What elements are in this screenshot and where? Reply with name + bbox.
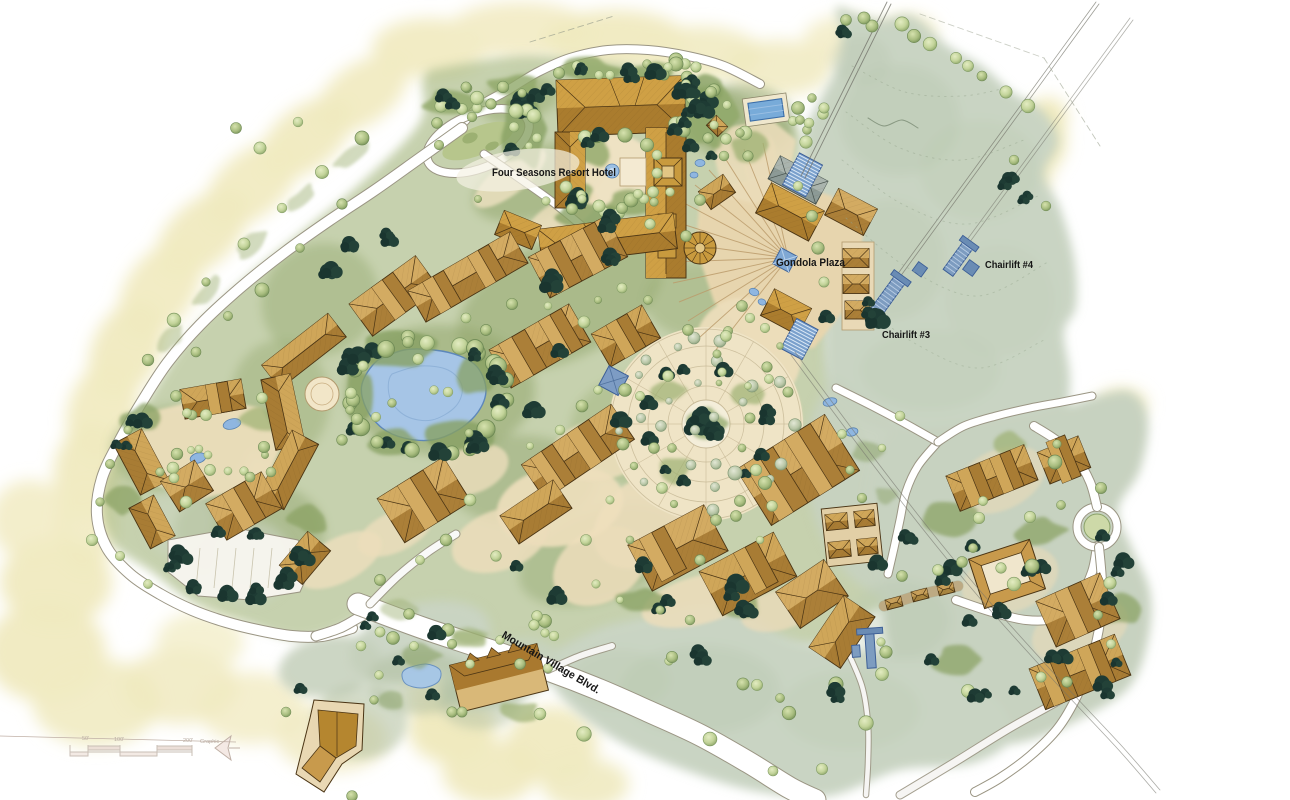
svg-text:Gondola Plaza: Gondola Plaza xyxy=(776,257,846,269)
svg-text:50': 50' xyxy=(82,736,89,742)
svg-text:100': 100' xyxy=(114,737,124,743)
svg-text:Four Seasons Resort Hotel: Four Seasons Resort Hotel xyxy=(492,167,616,179)
svg-text:Graphic: Graphic xyxy=(200,739,220,745)
svg-text:Chairlift #3: Chairlift #3 xyxy=(882,330,930,341)
svg-text:Chairlift #4: Chairlift #4 xyxy=(985,260,1033,271)
